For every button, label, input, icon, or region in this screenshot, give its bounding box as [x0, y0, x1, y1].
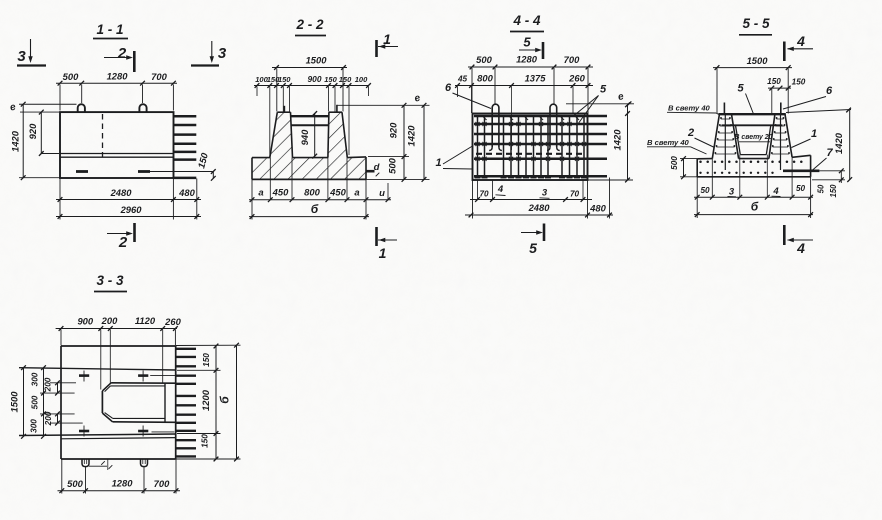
svg-text:1280: 1280: [516, 54, 538, 65]
svg-text:2: 2: [117, 45, 127, 62]
svg-text:500: 500: [387, 157, 398, 173]
svg-text:4 - 4: 4 - 4: [512, 13, 541, 28]
svg-text:a: a: [354, 188, 359, 199]
svg-text:70: 70: [479, 190, 489, 199]
svg-text:1500: 1500: [9, 391, 20, 413]
svg-text:200: 200: [44, 411, 53, 426]
svg-text:5: 5: [600, 84, 607, 96]
svg-text:150: 150: [201, 434, 210, 448]
svg-text:800: 800: [477, 73, 493, 84]
svg-text:1: 1: [811, 128, 817, 140]
svg-text:3: 3: [17, 48, 26, 65]
svg-text:150: 150: [202, 353, 211, 367]
svg-text:500: 500: [67, 478, 83, 489]
svg-text:150: 150: [829, 184, 838, 198]
svg-text:2960: 2960: [120, 204, 143, 215]
svg-text:150: 150: [339, 75, 352, 84]
svg-text:2 - 2: 2 - 2: [295, 17, 324, 32]
svg-text:6: 6: [445, 82, 452, 94]
svg-text:2: 2: [687, 127, 694, 139]
svg-text:5 - 5: 5 - 5: [742, 16, 770, 31]
svg-text:1: 1: [435, 157, 441, 169]
svg-text:2480: 2480: [528, 202, 551, 213]
svg-text:940: 940: [299, 129, 310, 145]
svg-text:2480: 2480: [110, 187, 133, 198]
svg-text:100: 100: [355, 75, 368, 84]
svg-text:3: 3: [218, 45, 227, 62]
svg-text:500: 500: [31, 395, 40, 409]
svg-text:3: 3: [542, 188, 548, 199]
svg-text:1280: 1280: [107, 71, 129, 82]
svg-text:1200: 1200: [200, 389, 211, 411]
svg-text:1 - 1: 1 - 1: [96, 22, 123, 37]
svg-text:920: 920: [27, 123, 38, 139]
svg-text:5: 5: [737, 83, 744, 95]
svg-text:200: 200: [44, 377, 53, 392]
svg-text:б: б: [218, 396, 232, 404]
svg-text:В свету 40: В свету 40: [647, 138, 690, 147]
svg-text:3: 3: [729, 187, 735, 198]
svg-text:2: 2: [118, 234, 128, 251]
svg-text:В свету 40: В свету 40: [668, 104, 711, 113]
svg-text:500: 500: [670, 156, 679, 170]
svg-text:50: 50: [796, 184, 806, 193]
svg-text:б: б: [311, 202, 319, 216]
svg-text:150: 150: [792, 78, 806, 87]
svg-text:70: 70: [570, 190, 580, 199]
svg-text:450: 450: [272, 187, 289, 198]
svg-text:1420: 1420: [406, 125, 417, 147]
svg-text:5: 5: [529, 240, 537, 256]
svg-text:1: 1: [379, 245, 387, 261]
svg-text:450: 450: [329, 187, 346, 198]
svg-text:260: 260: [568, 73, 585, 84]
svg-text:700: 700: [151, 71, 167, 82]
svg-text:50: 50: [700, 186, 710, 195]
svg-text:1500: 1500: [306, 55, 328, 66]
svg-text:1120: 1120: [135, 315, 156, 326]
svg-text:1420: 1420: [10, 130, 21, 152]
svg-text:800: 800: [304, 187, 320, 198]
svg-text:б: б: [751, 200, 759, 214]
svg-text:50: 50: [817, 184, 826, 193]
svg-text:700: 700: [154, 478, 170, 489]
svg-text:1420: 1420: [833, 132, 844, 154]
svg-text:700: 700: [564, 54, 580, 65]
svg-text:6: 6: [826, 85, 833, 97]
svg-text:920: 920: [388, 122, 399, 138]
svg-text:4: 4: [796, 33, 805, 49]
svg-text:4: 4: [497, 184, 504, 195]
svg-text:300: 300: [31, 372, 40, 386]
svg-text:1375: 1375: [525, 73, 547, 84]
svg-text:В свету 20: В свету 20: [735, 134, 773, 141]
svg-text:1: 1: [383, 31, 391, 47]
svg-text:150: 150: [278, 75, 291, 84]
svg-text:d: d: [374, 162, 380, 173]
svg-text:a: a: [258, 188, 263, 199]
svg-text:4: 4: [772, 186, 779, 197]
svg-text:3 - 3: 3 - 3: [96, 273, 124, 288]
svg-text:480: 480: [178, 187, 195, 198]
svg-text:1420: 1420: [612, 129, 623, 151]
svg-text:500: 500: [63, 71, 79, 82]
svg-text:300: 300: [30, 419, 39, 433]
svg-text:500: 500: [476, 54, 492, 65]
svg-text:45: 45: [457, 75, 468, 84]
svg-text:1280: 1280: [112, 478, 134, 489]
svg-text:1500: 1500: [747, 55, 769, 66]
svg-text:150: 150: [767, 77, 781, 86]
svg-text:480: 480: [589, 203, 606, 214]
svg-text:900: 900: [77, 316, 93, 327]
svg-text:4: 4: [796, 240, 805, 256]
svg-text:u: u: [379, 188, 385, 199]
svg-text:5: 5: [523, 35, 531, 50]
svg-text:150: 150: [324, 75, 337, 84]
svg-text:260: 260: [164, 316, 181, 327]
svg-text:900: 900: [308, 74, 322, 84]
svg-text:200: 200: [101, 315, 118, 326]
